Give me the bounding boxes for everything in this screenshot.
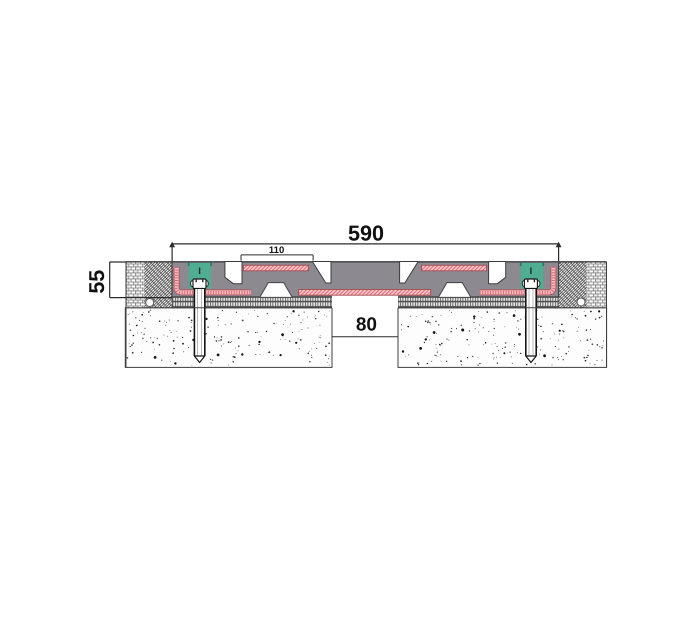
svg-text:110: 110 [269, 245, 284, 256]
svg-text:590: 590 [348, 220, 384, 245]
svg-text:80: 80 [356, 315, 377, 336]
svg-text:55: 55 [85, 270, 109, 294]
